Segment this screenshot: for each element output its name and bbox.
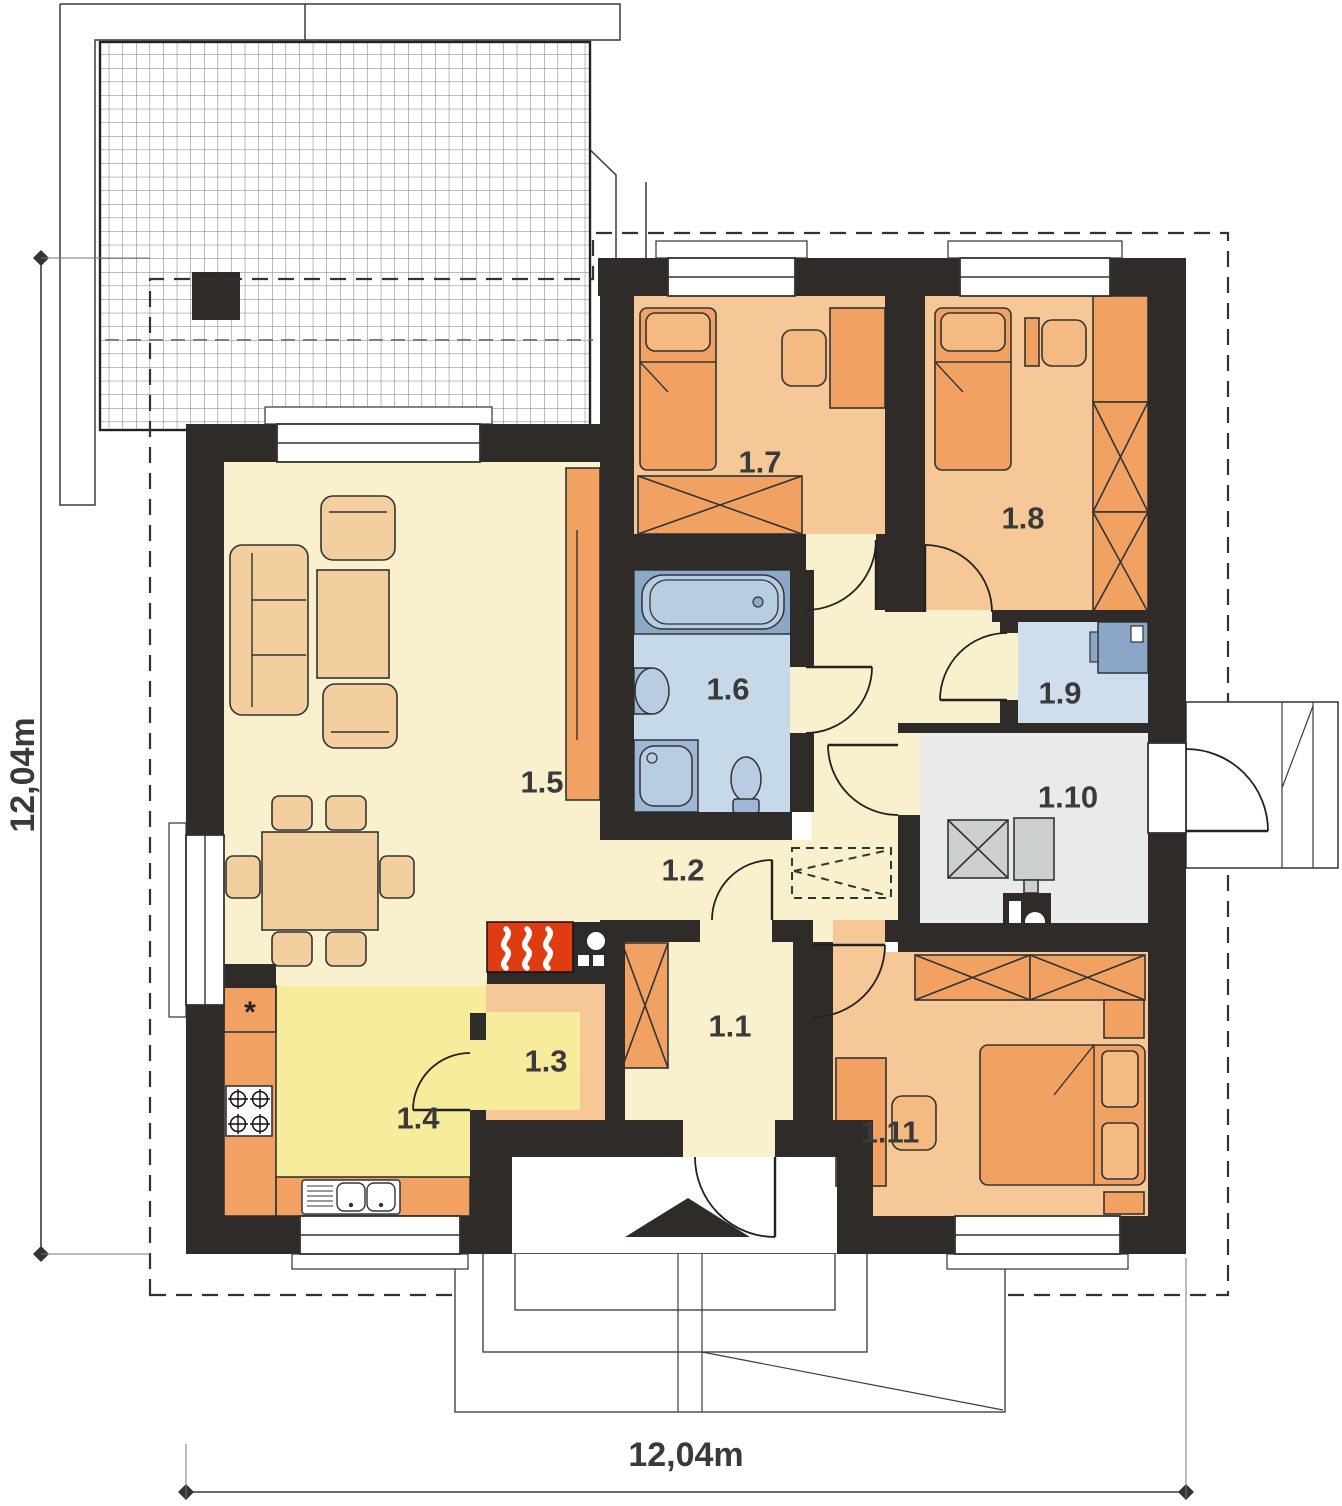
room-label-1-2: 1.2 (661, 853, 704, 888)
room-label-1-9: 1.9 (1038, 676, 1081, 711)
wardrobe-double (915, 955, 1145, 1000)
side-door (1148, 743, 1186, 833)
shower-icon (634, 740, 698, 812)
nightstand (1104, 1000, 1144, 1038)
porch-steps (455, 1253, 1005, 1412)
room-label-1-10: 1.10 (1038, 780, 1098, 815)
room-label-1-6: 1.6 (706, 672, 749, 707)
nightstand (1104, 1192, 1144, 1214)
room-label-1-1: 1.1 (708, 1009, 751, 1044)
chair (782, 330, 826, 386)
dimension-label-bottom: 12,04m (628, 1436, 743, 1474)
fridge-symbol: * (244, 996, 256, 1029)
sofa (230, 545, 308, 715)
terrace-grid (100, 42, 590, 430)
room-label-1-11: 1.11 (861, 1115, 920, 1150)
bed-double (980, 1045, 1145, 1185)
sink-icon (302, 1180, 400, 1214)
floor-plan: 1.1 1.2 1.3 1.4 1.5 1.6 1.7 1.8 1.9 1.10… (0, 0, 1342, 1506)
toilet-icon (731, 757, 761, 813)
room-label-1-7: 1.7 (738, 445, 781, 480)
washbasin-icon (634, 668, 669, 714)
armchair (321, 496, 395, 560)
dining-table (262, 832, 378, 930)
stove-icon (226, 1086, 272, 1136)
bed-single (640, 308, 716, 470)
coffee-table (317, 570, 389, 678)
bed-single (935, 308, 1011, 470)
armchair (323, 684, 397, 748)
room-label-1-8: 1.8 (1001, 501, 1044, 536)
room-label-1-3: 1.3 (524, 1044, 567, 1079)
wardrobe-column (1093, 296, 1148, 612)
room-label-1-4: 1.4 (396, 1101, 440, 1136)
desk (1025, 318, 1039, 366)
desk (1090, 622, 1148, 673)
chair (1042, 320, 1086, 366)
dimension-label-left: 12,04m (4, 717, 42, 832)
bathtub-icon (634, 570, 792, 634)
shelf-cabinet (566, 468, 600, 800)
terrace (100, 42, 590, 430)
porch-floor (512, 1157, 837, 1253)
side-entry-steps (1186, 702, 1338, 868)
room-label-1-5: 1.5 (520, 765, 563, 800)
desk (830, 308, 885, 408)
